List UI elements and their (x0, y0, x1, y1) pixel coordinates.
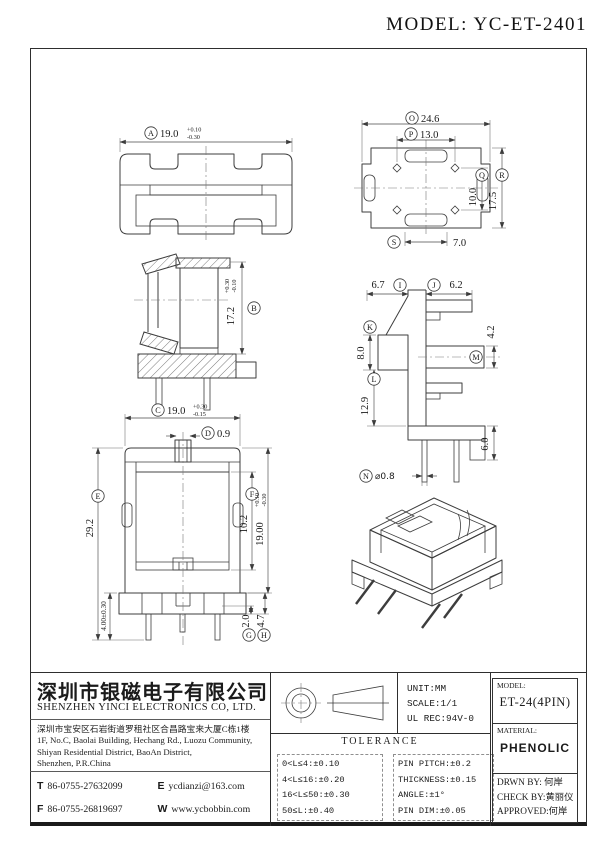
checked-by: CHECK BY:黄丽仪 (497, 791, 573, 806)
tolerance-title: TOLERANCE (270, 736, 490, 747)
divider (493, 773, 577, 774)
dim-base-height-value: 4.00±0.30 (99, 601, 108, 631)
company-address: 深圳市宝安区石岩街道罗租社区合昌路宝来大厦C栋1楼 1F, No.C, Baol… (37, 724, 252, 769)
fax-number: 86-0755-26819697 (47, 799, 122, 821)
material-label: MATERIAL: (493, 724, 577, 735)
tolerance-row: THICKNESS:±0.15 (398, 773, 493, 789)
dim-K-value: 8.0 (356, 346, 367, 359)
dim-D: D 0.9 (166, 427, 230, 440)
dim-K-letter: K (367, 323, 373, 332)
drawing-sheet: MODEL: YC-ET-2401 A 19 (0, 0, 601, 850)
dim-H-letter: H (261, 631, 267, 640)
dim-B-letter: B (251, 304, 257, 313)
web-label: W (157, 803, 167, 815)
dim-M-letter: M (472, 353, 480, 362)
dim-C-letter: C (155, 406, 161, 415)
dim-body-height-tol-dn: -0.30 (261, 494, 268, 507)
address-en-3: Shenzhen, P.R.China (37, 758, 252, 769)
tolerance-row: PIN PITCH:±0.2 (398, 757, 493, 773)
dim-L-letter: L (371, 375, 376, 384)
company-contacts: T86-0755-27632099 Eycdianzi@163.com F86-… (37, 775, 265, 821)
view-isometric (352, 498, 502, 628)
tolerance-row: 50≤L:±0.40 (282, 804, 382, 820)
title-block-footer: 深圳市银磁电子有限公司 SHENZHEN YINCI ELECTRONICS C… (30, 672, 587, 826)
tolerance-row: ANGLE:±1° (398, 788, 493, 804)
view-front: C 19.0 +0.30 -0.15 D 0.9 E 29.2 (85, 404, 272, 649)
material-value: PHENOLIC (493, 741, 577, 755)
dim-L: L 12.9 (360, 370, 406, 426)
dim-I-letter: I (399, 281, 402, 290)
dim-A-value: 19.0 (160, 129, 178, 140)
dim-C-value: 19.0 (167, 406, 185, 417)
dim-I: 6.7 I (367, 279, 408, 301)
spec-ul: UL REC:94V-0 (407, 711, 490, 726)
tolerance-row: 16<L≤50:±0.30 (282, 788, 382, 804)
dim-S-letter: S (392, 238, 397, 247)
dim-C-tol-dn: -0.15 (193, 411, 206, 418)
drawing-title-block: MODEL: ET-24(4PIN) MATERIAL: PHENOLIC DR… (492, 678, 578, 823)
address-en-2: Shiyan Residential District, BaoAn Distr… (37, 747, 252, 758)
tolerance-feature-table: PIN PITCH:±0.2 THICKNESS:±0.15 ANGLE:±1°… (393, 754, 494, 821)
tolerance-row: PIN DIM:±0.05 (398, 804, 493, 820)
dim-A-letter: A (148, 129, 154, 138)
tel-number: 86-0755-27632099 (47, 776, 122, 798)
dim-foot-value: 6.0 (480, 437, 491, 450)
specs-cell: UNIT:MM SCALE:1/1 UL REC:94V-0 (397, 673, 490, 733)
dim-E: E 29.2 (85, 448, 144, 640)
dim-M-value: 4.2 (486, 325, 497, 338)
divider (30, 719, 270, 720)
dim-B-tol-dn: -0.10 (231, 280, 238, 293)
page-title: MODEL: YC-ET-2401 (287, 14, 587, 36)
dim-foot: 6.0 (480, 426, 498, 460)
dim-Q: Q 10.0 (461, 168, 488, 210)
projection-angle-icon (271, 673, 397, 733)
dim-I-value: 6.7 (371, 280, 384, 291)
model-section: MODEL: ET-24(4PIN) (493, 679, 577, 710)
company-name-cn: 深圳市银磁电子有限公司 (37, 676, 268, 705)
email-label: E (157, 780, 164, 792)
tolerance-section: TOLERANCE 0<L≤4:±0.10 4<L≤16:±0.20 16<L≤… (270, 733, 490, 827)
model-value: ET-24(4PIN) (493, 695, 577, 710)
dim-body-height-tol-up: +0.10 (254, 493, 261, 507)
model-label: MODEL: (493, 679, 577, 690)
dim-D-value: 0.9 (217, 429, 230, 440)
dim-N-value: ⌀0.8 (375, 472, 395, 482)
company-name-en: SHENZHEN YINCI ELECTRONICS CO, LTD. (37, 702, 256, 713)
dim-body-height-value: 19.00 (255, 522, 266, 546)
drawn-by: DRWN BY: 何岸 (497, 776, 573, 791)
dim-R-value: 17.5 (488, 192, 499, 210)
approved-by: APPROVED:何岸 (497, 805, 573, 820)
signature-section: DRWN BY: 何岸 CHECK BY:黄丽仪 APPROVED:何岸 (497, 776, 573, 820)
dim-L-value: 12.9 (360, 397, 371, 415)
contact-row: F86-0755-26819697 Wwww.ycbobbin.com (37, 798, 265, 821)
web-value: www.ycbobbin.com (171, 799, 250, 821)
dim-R-letter: R (499, 171, 505, 180)
email-value: ycdianzi@163.com (168, 776, 244, 798)
tolerance-length-table: 0<L≤4:±0.10 4<L≤16:±0.20 16<L≤50:±0.30 5… (277, 754, 383, 821)
dim-J: J 6.2 (426, 279, 472, 301)
tel-label: T (37, 780, 43, 792)
divider (30, 771, 270, 772)
spec-scale: SCALE:1/1 (407, 696, 490, 711)
dim-F: F 10.2 (231, 472, 258, 570)
dim-P-letter: P (409, 130, 414, 139)
fax-label: F (37, 803, 43, 815)
dim-P-value: 13.0 (420, 130, 438, 141)
dim-O-letter: O (409, 114, 415, 123)
company-cell: 深圳市银磁电子有限公司 SHENZHEN YINCI ELECTRONICS C… (30, 673, 270, 827)
dim-N: N ⌀0.8 (360, 466, 437, 486)
dim-F-value: 10.2 (239, 515, 250, 533)
dim-B-value: 17.2 (226, 307, 237, 325)
dim-base-height: 4.00±0.30 (99, 593, 117, 640)
dim-C-tol-up: +0.30 (193, 404, 207, 411)
tolerance-row: 0<L≤4:±0.10 (282, 757, 382, 773)
address-en-1: 1F, No.C, Baolai Building, Hechang Rd., … (37, 735, 252, 746)
dim-G-value: 2.0 (241, 614, 252, 627)
dim-B: 17.2 +0.30 -0.10 B (224, 262, 260, 354)
dim-Q-value: 10.0 (468, 188, 479, 206)
dim-J-value: 6.2 (449, 280, 462, 291)
contact-row: T86-0755-27632099 Eycdianzi@163.com (37, 775, 265, 798)
dim-A-tol-up: +0.10 (187, 127, 201, 134)
dim-Q-letter: Q (479, 171, 485, 180)
dim-H-value: 4.7 (256, 614, 267, 627)
view-top: A 19.0 +0.10 -0.30 (120, 127, 292, 243)
projection-symbol-cell (271, 673, 397, 733)
dim-G-letter: G (246, 631, 252, 640)
tolerance-row: 4<L≤16:±0.20 (282, 773, 382, 789)
address-cn: 深圳市宝安区石岩街道罗租社区合昌路宝来大厦C栋1楼 (37, 724, 252, 735)
view-section: 17.2 +0.30 -0.10 B (134, 254, 260, 410)
view-bottom: O 24.6 P 13.0 Q 10.0 (354, 112, 508, 249)
dim-D-letter: D (205, 429, 211, 438)
dim-B-tol-up: +0.30 (224, 279, 231, 293)
dim-N-letter: N (363, 472, 369, 481)
dim-S: S 7.0 (388, 232, 466, 249)
dim-E-value: 29.2 (85, 519, 96, 537)
dim-E-letter: E (95, 492, 100, 501)
dim-K: K 8.0 (356, 321, 376, 370)
drawing-area: A 19.0 +0.10 -0.30 (30, 48, 588, 670)
dim-A-tol-dn: -0.30 (187, 134, 200, 141)
pins-bottom-view (393, 164, 459, 214)
view-side: 6.7 I J 6.2 K 8.0 (356, 279, 502, 486)
spec-unit: UNIT:MM (407, 681, 490, 696)
dim-S-value: 7.0 (453, 238, 466, 249)
dim-O-value: 24.6 (421, 114, 439, 125)
dim-G: G 2.0 (222, 606, 255, 641)
material-section: MATERIAL: PHENOLIC (493, 724, 577, 755)
